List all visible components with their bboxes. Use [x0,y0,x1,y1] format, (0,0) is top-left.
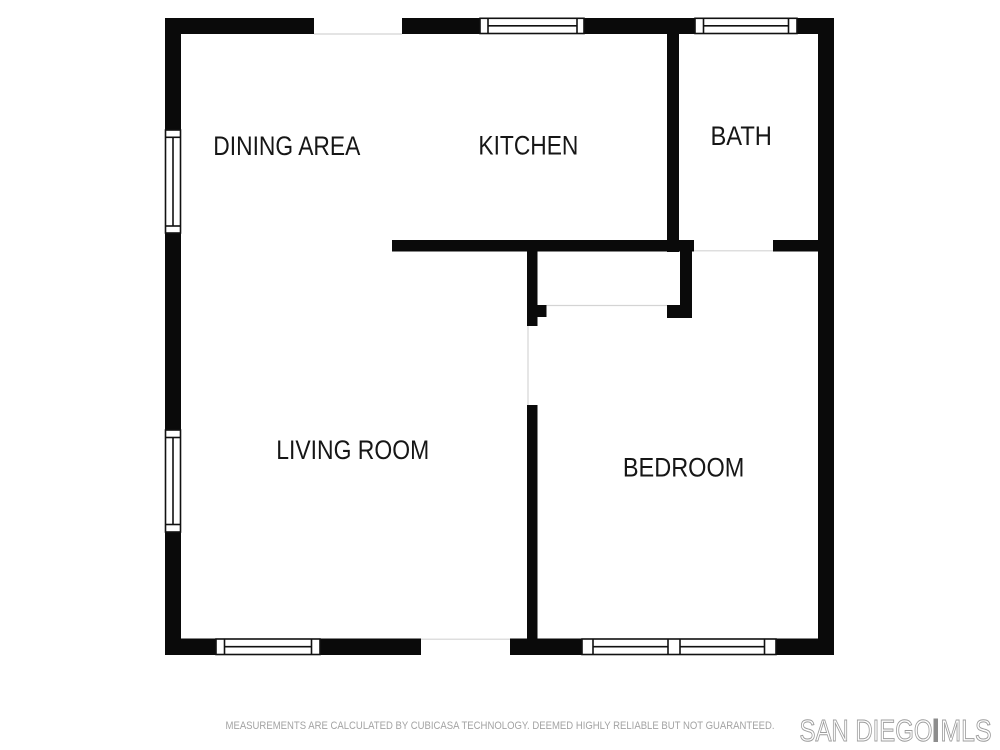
svg-text:LIVING ROOM: LIVING ROOM [276,435,429,465]
svg-text:BATH: BATH [710,121,772,151]
svg-text:MLS: MLS [941,713,992,748]
svg-text:DINING AREA: DINING AREA [213,131,360,161]
svg-text:MEASUREMENTS ARE CALCULATED BY: MEASUREMENTS ARE CALCULATED BY CUBICASA … [226,720,775,732]
svg-text:SAN DIEGO: SAN DIEGO [800,713,933,748]
svg-text:KITCHEN: KITCHEN [478,131,578,161]
svg-text:BEDROOM: BEDROOM [623,453,745,483]
